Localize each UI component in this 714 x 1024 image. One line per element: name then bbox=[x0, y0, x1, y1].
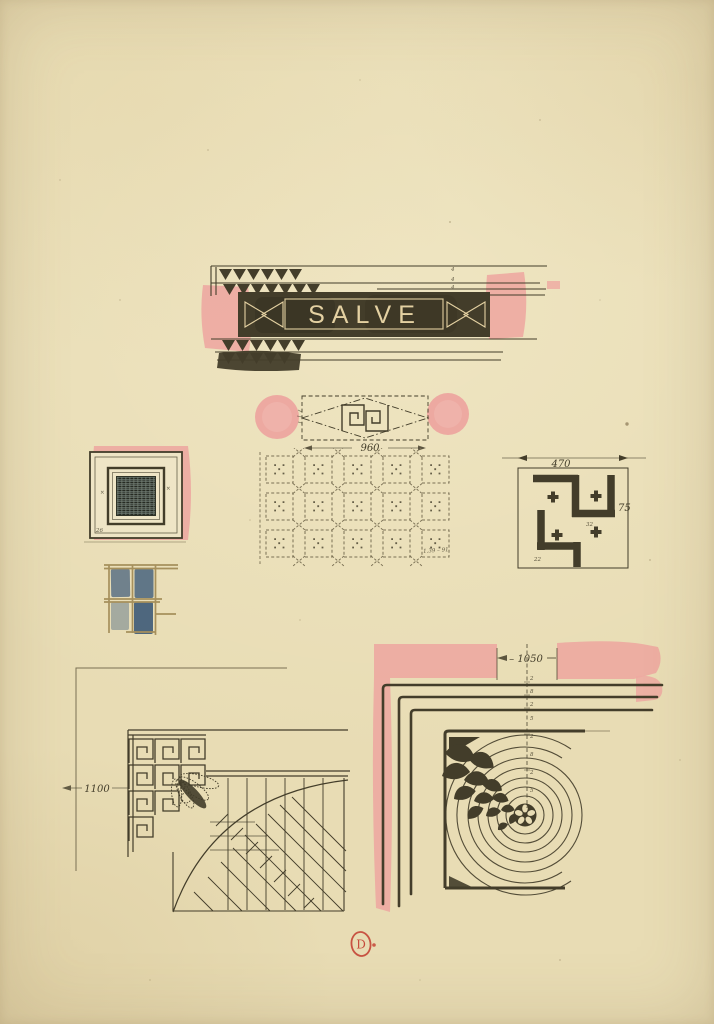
band-tick: 4 bbox=[450, 277, 455, 283]
greek-key-corner-band bbox=[128, 730, 350, 857]
svg-text:2: 2 bbox=[529, 702, 534, 708]
band-tick: 4 bbox=[450, 285, 455, 291]
micro-mark: 22 bbox=[533, 557, 541, 563]
micro-mark: × bbox=[166, 486, 171, 492]
frame-tick-marks: 2 8 2 5 2 8 2 5 bbox=[529, 676, 534, 794]
svg-text:5: 5 bbox=[530, 788, 534, 794]
svg-text:8: 8 bbox=[530, 689, 534, 695]
corner-pattern-circles-scales: – 1050 bbox=[368, 638, 672, 926]
dimension-1100: 1100 bbox=[62, 784, 128, 795]
salve-inscription: SALVE bbox=[308, 301, 422, 329]
nested-square-panel: × × 26 bbox=[80, 438, 202, 552]
drawing-sheet: 4 4 4 SALVE bbox=[0, 0, 714, 1024]
svg-text:5: 5 bbox=[530, 716, 534, 722]
collection-stamp: D bbox=[344, 924, 384, 964]
scan-corner-shadow bbox=[0, 0, 40, 30]
rosette bbox=[514, 804, 537, 827]
stamp-letter: D bbox=[356, 938, 366, 952]
pink-circle-left bbox=[255, 395, 299, 439]
double-greek-key bbox=[342, 405, 388, 431]
svg-text:– 1050: – 1050 bbox=[509, 654, 543, 665]
dashed-squares bbox=[266, 456, 449, 557]
stamp-dot bbox=[372, 943, 376, 947]
hatched-centre bbox=[117, 477, 156, 516]
nested-corner-frames bbox=[383, 685, 662, 906]
svg-text:8: 8 bbox=[530, 752, 534, 758]
svg-text:1100: 1100 bbox=[84, 784, 110, 795]
dashed-field bbox=[302, 396, 428, 440]
square-lattice-pattern: 1.39 – 91 bbox=[256, 448, 470, 572]
blue-lattice-fragment bbox=[96, 556, 184, 644]
svg-text:2: 2 bbox=[529, 770, 534, 776]
scale-ornaments bbox=[440, 741, 519, 831]
dimension-75: 75 bbox=[618, 503, 631, 514]
lozenge-outline bbox=[302, 398, 428, 438]
grid-annotation: 1.39 – 91 bbox=[423, 547, 449, 555]
svg-text:2: 2 bbox=[529, 676, 534, 682]
micro-mark: × bbox=[100, 490, 105, 496]
meander-fret bbox=[533, 475, 615, 567]
corner-pattern-key-fan: 1100 bbox=[58, 652, 354, 924]
band-tick: 4 bbox=[450, 267, 455, 273]
swastika-meander-panel: 470 75 32 22 bbox=[500, 445, 648, 577]
ink-smear bbox=[217, 351, 301, 371]
bottom-sawtooth-band bbox=[211, 339, 537, 371]
salve-threshold-mosaic-figure: 4 4 4 SALVE bbox=[195, 253, 565, 371]
micro-mark: 26 bbox=[95, 528, 103, 534]
salve-panel: SALVE bbox=[238, 292, 490, 337]
micro-mark: 32 bbox=[586, 522, 593, 528]
svg-text:2: 2 bbox=[529, 734, 534, 740]
pink-circle-right bbox=[427, 393, 469, 435]
